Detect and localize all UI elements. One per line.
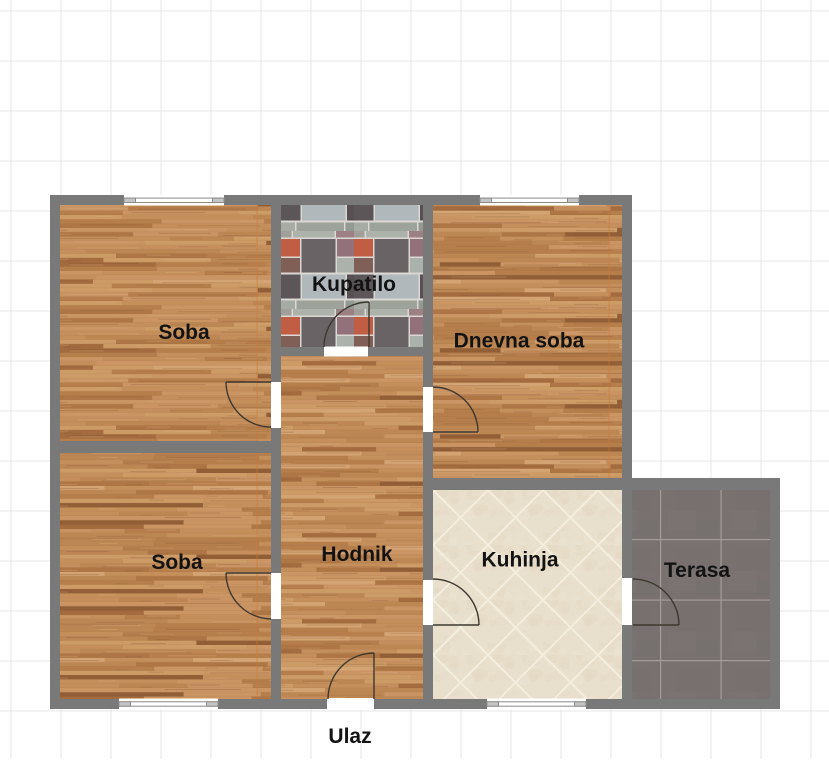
svg-text:Terasa: Terasa	[664, 559, 730, 582]
svg-text:Soba: Soba	[151, 551, 203, 574]
svg-text:Ulaz: Ulaz	[328, 725, 371, 748]
svg-text:Hodnik: Hodnik	[321, 543, 392, 566]
svg-text:Kupatilo: Kupatilo	[312, 273, 396, 296]
svg-text:Soba: Soba	[158, 321, 210, 344]
svg-text:Kuhinja: Kuhinja	[482, 549, 559, 572]
svg-text:Dnevna soba: Dnevna soba	[454, 330, 585, 353]
